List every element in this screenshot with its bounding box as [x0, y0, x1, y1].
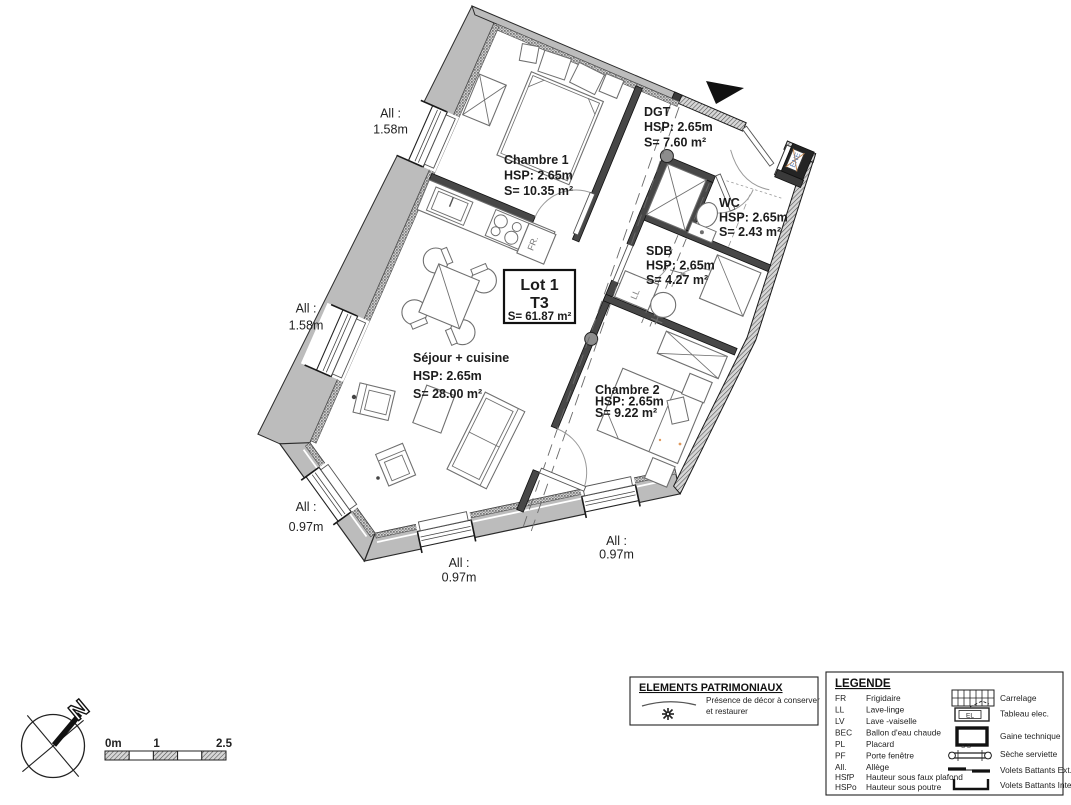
svg-text:All :: All :	[449, 556, 470, 570]
svg-text:Volets Battants Ext.: Volets Battants Ext.	[1000, 765, 1071, 775]
svg-text:Hauteur sous faux plafond: Hauteur sous faux plafond	[866, 772, 963, 782]
svg-text:Hauteur sous poutre: Hauteur sous poutre	[866, 782, 942, 792]
svg-text:HSP: 2.65m: HSP: 2.65m	[504, 169, 573, 183]
svg-text:1.58m: 1.58m	[373, 123, 408, 137]
svg-text:BEC: BEC	[835, 728, 852, 738]
svg-text:0.97m: 0.97m	[442, 571, 477, 585]
svg-text:HSfP: HSfP	[835, 772, 855, 782]
svg-text:PL: PL	[835, 739, 846, 749]
svg-text:et restaurer: et restaurer	[706, 707, 748, 716]
svg-text:Allège: Allège	[866, 762, 889, 772]
svg-text:EL: EL	[966, 713, 974, 720]
svg-text:HSPo: HSPo	[835, 782, 857, 792]
svg-text:ELEMENTS PATRIMONIAUX: ELEMENTS PATRIMONIAUX	[639, 682, 783, 694]
svg-text:Présence de décor à conserver: Présence de décor à conserver	[706, 696, 820, 705]
svg-text:HSP: 2.65m: HSP: 2.65m	[646, 259, 715, 273]
svg-text:Chambre 1: Chambre 1	[504, 153, 569, 167]
svg-text:S= 2.43 m²: S= 2.43 m²	[719, 225, 781, 239]
svg-text:0.97m: 0.97m	[599, 548, 634, 562]
svg-text:S= 10.35 m²: S= 10.35 m²	[504, 184, 573, 198]
svg-text:0.97m: 0.97m	[289, 520, 324, 534]
svg-text:1: 1	[153, 738, 160, 750]
svg-text:LEGENDE: LEGENDE	[835, 678, 891, 690]
svg-text:Placard: Placard	[866, 739, 895, 749]
svg-text:All :: All :	[380, 107, 401, 121]
svg-text:LV: LV	[835, 716, 845, 726]
svg-text:S= 7.60 m²: S= 7.60 m²	[644, 136, 706, 150]
svg-text:HSP: 2.65m: HSP: 2.65m	[644, 120, 713, 134]
svg-text:HSP: 2.65m: HSP: 2.65m	[413, 369, 482, 383]
svg-text:Frigidaire: Frigidaire	[866, 693, 901, 703]
svg-text:FR: FR	[835, 693, 846, 703]
svg-text:Carrelage: Carrelage	[1000, 693, 1037, 703]
svg-text:S= 61.87 m²: S= 61.87 m²	[508, 311, 572, 323]
svg-text:Ballon d'eau chaude: Ballon d'eau chaude	[866, 728, 941, 738]
svg-text:All :: All :	[296, 500, 317, 514]
svg-text:0m: 0m	[105, 738, 122, 750]
svg-text:Lot 1: Lot 1	[520, 277, 558, 294]
svg-text:Porte fenêtre: Porte fenêtre	[866, 751, 914, 761]
svg-text:Sèche serviette: Sèche serviette	[1000, 749, 1058, 759]
svg-text:WC: WC	[719, 196, 740, 210]
svg-text:PF: PF	[835, 751, 846, 761]
svg-text:DGT: DGT	[644, 105, 671, 119]
svg-text:Séjour + cuisine: Séjour + cuisine	[413, 351, 509, 365]
svg-text:All :: All :	[296, 302, 317, 316]
svg-text:2.5: 2.5	[216, 738, 233, 750]
svg-text:Tableau elec.: Tableau elec.	[1000, 709, 1049, 719]
svg-text:Lave-linge: Lave-linge	[866, 705, 905, 715]
svg-text:S= 4.27 m²: S= 4.27 m²	[646, 273, 708, 287]
svg-text:1.58m: 1.58m	[289, 319, 324, 333]
svg-text:Volets Battants Inter.: Volets Battants Inter.	[1000, 780, 1071, 790]
svg-text:Lave -vaiselle: Lave -vaiselle	[866, 716, 917, 726]
svg-text:S= 28.00 m²: S= 28.00 m²	[413, 387, 482, 401]
svg-text:S= 9.22 m²: S= 9.22 m²	[595, 406, 657, 420]
svg-text:LL: LL	[835, 705, 845, 715]
svg-text:HSP: 2.65m: HSP: 2.65m	[719, 211, 788, 225]
svg-text:T3: T3	[530, 295, 549, 312]
svg-text:S S: S S	[961, 744, 971, 750]
svg-text:All :: All :	[606, 534, 627, 548]
svg-text:Gaine technique: Gaine technique	[1000, 731, 1061, 741]
svg-text:SDB: SDB	[646, 244, 672, 258]
svg-text:All.: All.	[835, 762, 847, 772]
